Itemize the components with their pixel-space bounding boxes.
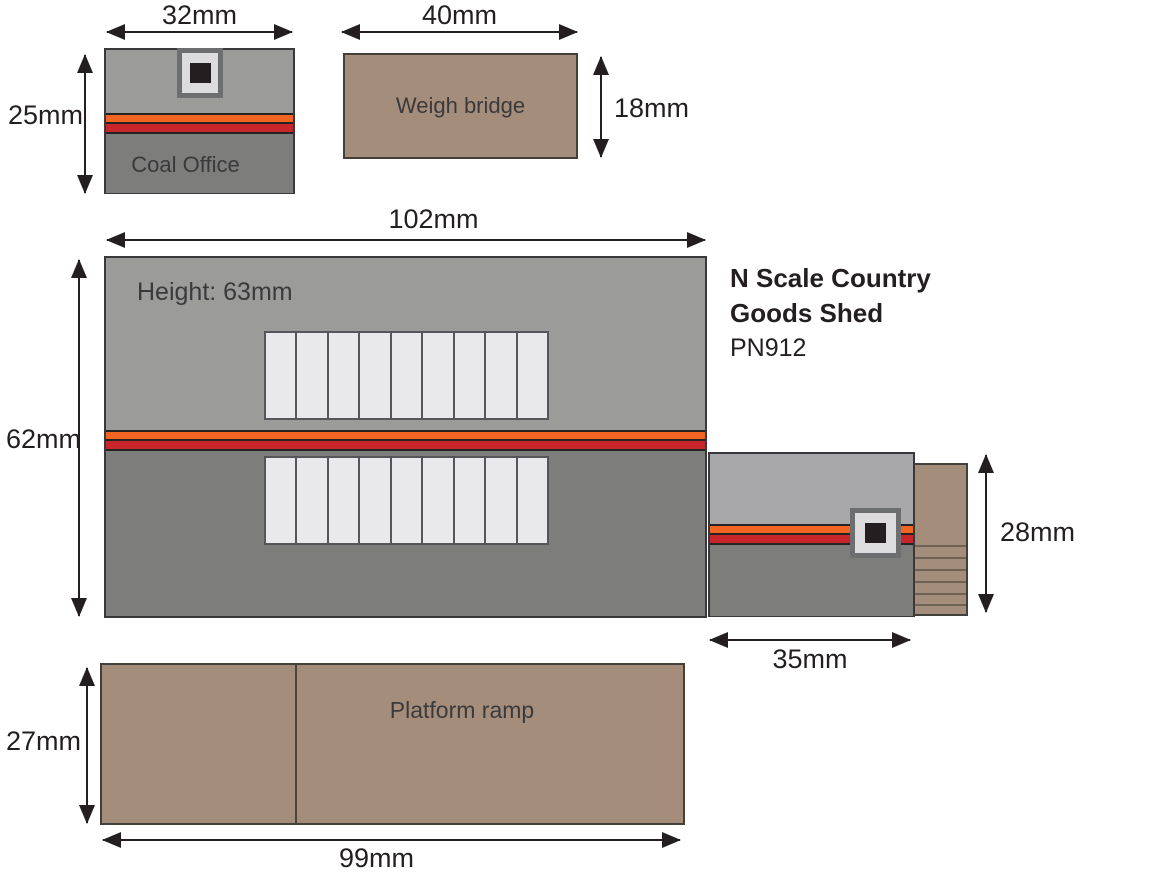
slat (486, 333, 517, 418)
coal-office-height-label: 25mm (8, 101, 80, 129)
coal-office-width-arrow (107, 31, 292, 33)
platform-ramp-fold-line (295, 665, 297, 823)
goods-shed-plan-diagram: 32mm 25mm Coal Office 40mm Weigh bridge … (0, 0, 1153, 872)
slat (392, 333, 423, 418)
coal-office-plan: Coal Office (104, 48, 295, 194)
slat (297, 333, 328, 418)
coal-office-height-arrow (84, 55, 86, 193)
step-line (915, 569, 966, 571)
coal-office-label: Coal Office (106, 152, 265, 178)
slat (518, 333, 547, 418)
weigh-bridge-width-arrow (342, 31, 577, 33)
slat (266, 333, 297, 418)
slat (486, 458, 517, 543)
side-extension-width-label: 35mm (710, 645, 910, 673)
slat (297, 458, 328, 543)
weigh-bridge-label: Weigh bridge (345, 93, 576, 119)
side-extension-plan (708, 452, 915, 617)
platform-ramp-height-label: 27mm (6, 727, 80, 755)
platform-ramp-plan: Platform ramp (100, 663, 685, 825)
step-line (915, 593, 966, 595)
slat (455, 458, 486, 543)
side-extension-chimney (850, 508, 901, 558)
step-line (915, 545, 966, 547)
coal-office-chimney-core (190, 63, 211, 83)
slat (360, 458, 391, 543)
side-extension-chimney-core (865, 523, 886, 543)
goods-shed-roof-slats-bottom (264, 456, 549, 545)
coal-office-stripe-orange (106, 113, 293, 124)
goods-shed-stripe-red (106, 441, 705, 451)
slat (518, 458, 547, 543)
title-block: N Scale Country Goods Shed PN912 (730, 261, 1000, 366)
page-title-line1: N Scale Country (730, 261, 1000, 296)
goods-shed-stripe-orange (106, 430, 705, 441)
side-extension-steps (913, 463, 968, 616)
platform-ramp-label: Platform ramp (362, 697, 562, 724)
platform-ramp-width-label: 99mm (103, 844, 680, 872)
slat (455, 333, 486, 418)
goods-shed-width-arrow (107, 239, 705, 241)
slat (423, 458, 454, 543)
coal-office-stripe-red (106, 124, 293, 134)
side-extension-height-label: 28mm (1000, 518, 1090, 546)
goods-shed-width-label: 102mm (107, 205, 705, 233)
goods-shed-roof-slats-top (264, 331, 549, 420)
weigh-bridge-width-label: 40mm (342, 1, 577, 29)
weigh-bridge-height-label: 18mm (614, 94, 704, 122)
page-title-line2: Goods Shed (730, 296, 1000, 331)
platform-ramp-height-arrow (86, 668, 88, 823)
product-code: PN912 (730, 331, 1000, 366)
coal-office-width-label: 32mm (107, 1, 292, 29)
platform-ramp-width-arrow (103, 839, 680, 841)
slat (360, 333, 391, 418)
goods-shed-height-arrow (78, 260, 80, 616)
slat (266, 458, 297, 543)
side-extension-height-arrow (985, 455, 987, 612)
step-line (915, 604, 966, 606)
coal-office-roof-bottom: Coal Office (106, 134, 293, 193)
weigh-bridge-height-arrow (600, 57, 602, 157)
goods-shed-height-label: 62mm (6, 425, 80, 453)
slat (329, 333, 360, 418)
slat (423, 333, 454, 418)
goods-shed-height-note: Height: 63mm (137, 278, 293, 307)
goods-shed-plan: Height: 63mm (104, 256, 707, 618)
slat (392, 458, 423, 543)
slat (329, 458, 360, 543)
side-extension-width-arrow (710, 639, 910, 641)
step-line (915, 581, 966, 583)
coal-office-chimney (177, 48, 223, 98)
step-line (915, 557, 966, 559)
weigh-bridge-plan: Weigh bridge (343, 53, 578, 159)
